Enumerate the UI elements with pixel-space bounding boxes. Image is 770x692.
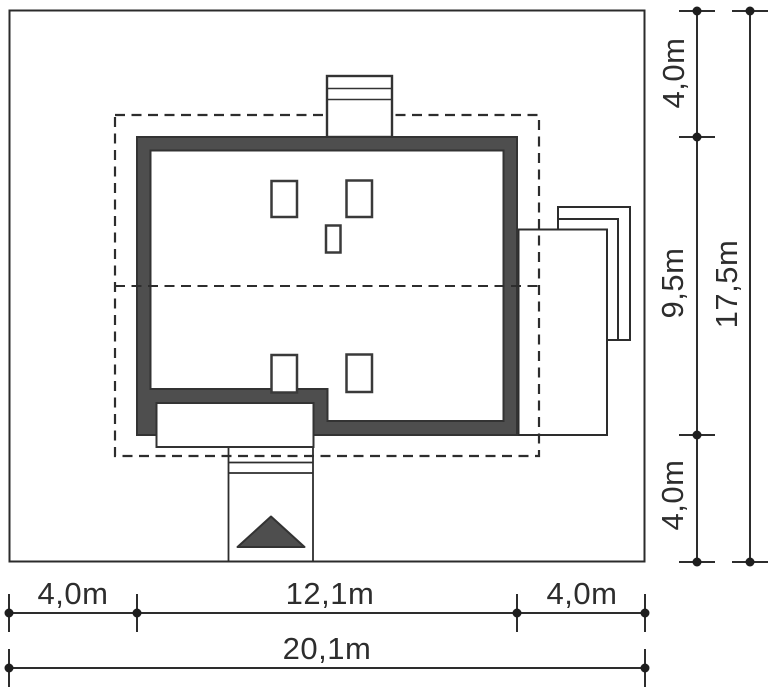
dim-label-right-bottom: 4,0m: [656, 425, 690, 565]
dim-label-right-top: 4,0m: [657, 3, 691, 143]
dim-label-right-middle: 9,5m: [656, 213, 690, 353]
terrace: [519, 230, 608, 436]
dim-label-right-total: 17,5m: [710, 214, 744, 354]
dim-label-bottom-left: 4,0m: [3, 577, 143, 611]
roof-window-2: [347, 181, 373, 218]
site-plan: 4,0m 9,5m 4,0m 17,5m 4,0m 12,1m 4,0m 20,…: [0, 0, 770, 692]
roof-window-4: [347, 355, 373, 393]
dim-label-bottom-total: 20,1m: [257, 632, 397, 666]
porch: [157, 403, 314, 447]
roof-window-3: [272, 355, 298, 393]
roof-window-1: [272, 181, 298, 217]
chimney: [327, 76, 392, 137]
dim-label-bottom-middle: 12,1m: [260, 577, 400, 611]
attic-window: [326, 226, 341, 253]
dim-label-bottom-right: 4,0m: [512, 577, 652, 611]
